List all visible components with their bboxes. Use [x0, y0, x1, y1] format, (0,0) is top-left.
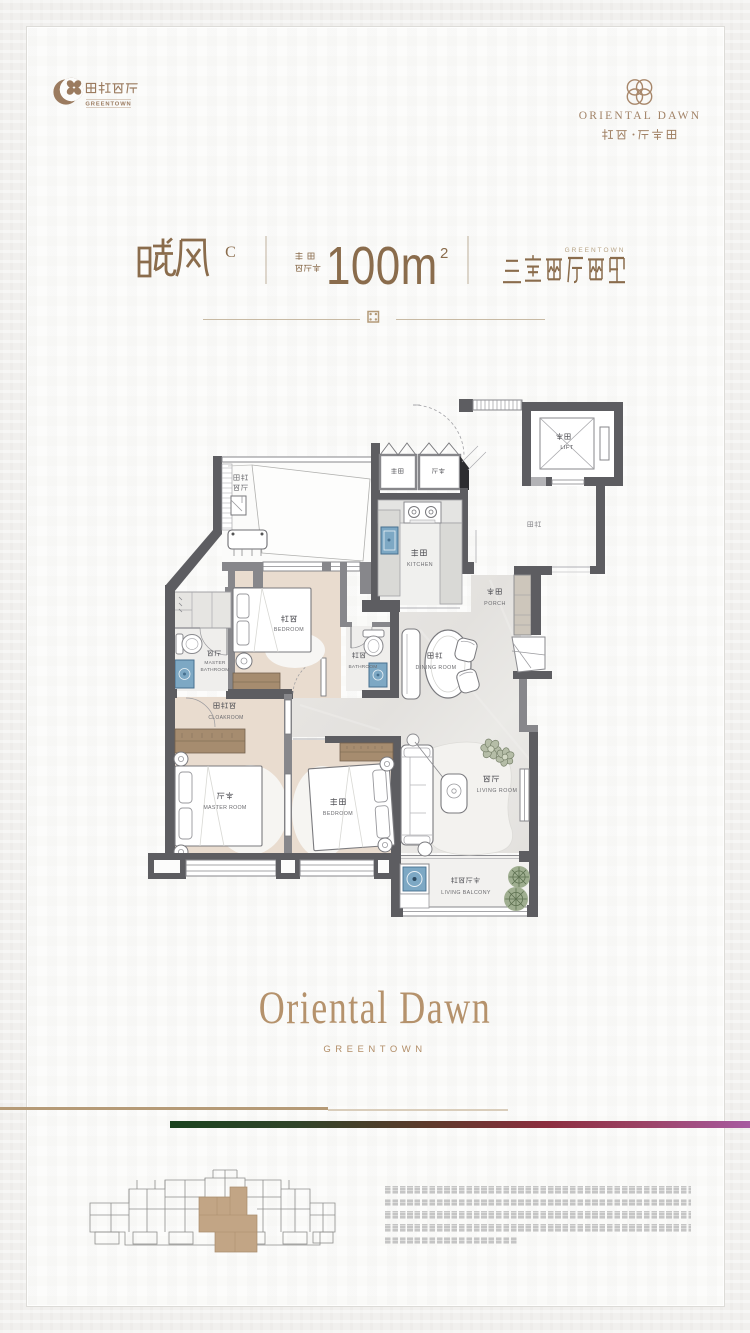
svg-text:2: 2	[440, 245, 448, 262]
svg-text:GREENTOWN: GREENTOWN	[565, 247, 626, 254]
svg-text:PORCH: PORCH	[484, 601, 506, 607]
svg-text:LIFT: LIFT	[560, 445, 573, 451]
svg-text:BEDROOM: BEDROOM	[274, 627, 304, 633]
svg-text:CLOAKROOM: CLOAKROOM	[208, 715, 243, 721]
svg-text:BATHROOM: BATHROOM	[349, 664, 378, 670]
svg-text:DINING ROOM: DINING ROOM	[416, 665, 457, 671]
svg-text:BATHROOM: BATHROOM	[201, 667, 230, 673]
svg-text:GREENTOWN: GREENTOWN	[85, 101, 131, 107]
svg-text:ORIENTAL DAWN: ORIENTAL DAWN	[579, 110, 701, 122]
svg-text:BEDROOM: BEDROOM	[323, 811, 353, 817]
svg-text:100m: 100m	[326, 237, 438, 296]
svg-text:MASTER: MASTER	[204, 660, 226, 666]
svg-text:MASTER ROOM: MASTER ROOM	[203, 805, 246, 811]
svg-text:C: C	[225, 244, 236, 261]
svg-text:LIVING BALCONY: LIVING BALCONY	[441, 890, 491, 896]
svg-text:KITCHEN: KITCHEN	[407, 562, 433, 568]
svg-text:LIVING ROOM: LIVING ROOM	[477, 788, 518, 794]
